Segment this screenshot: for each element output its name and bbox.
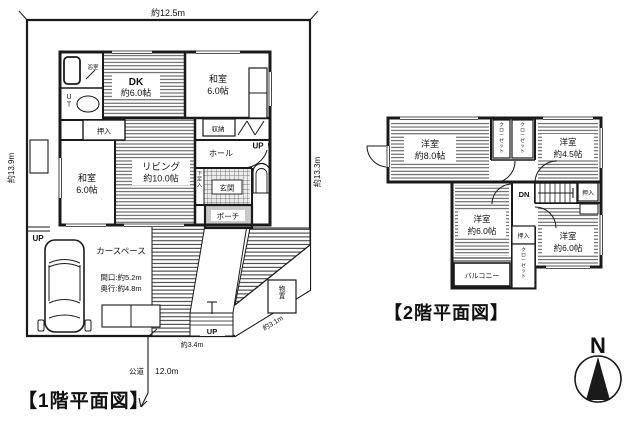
car-space-label: カースペース xyxy=(96,246,146,256)
shed-label: 物置 xyxy=(279,284,286,300)
room8-size: 約8.0帖 xyxy=(415,150,446,161)
floor2-title: 【2階平面図】 xyxy=(384,303,509,323)
oshiire-right-label: 押入 xyxy=(582,189,594,197)
entrance-label: 玄関 xyxy=(220,183,235,193)
shoe-cabinet-label: 下足入 xyxy=(197,170,202,188)
floorplan-page: 約12.5m 約13.9m 約13.3m UP 物置 xyxy=(0,0,640,421)
room8-label: 洋室 xyxy=(421,138,439,149)
bath-label: 浴室 xyxy=(87,63,99,71)
room6m-size: 約6.0帖 xyxy=(468,226,497,236)
ut-label: UT xyxy=(66,94,71,109)
hall-label: ホール xyxy=(209,149,233,158)
washitsu-top-size: 6.0帖 xyxy=(207,85,229,96)
floor1-plan: DK 約6.0帖 浴室 UT 和室 6.0帖 押入 和室 6.0帖 リビング 約… xyxy=(58,50,272,228)
depth-label: 奥行:約4.8m xyxy=(100,283,141,293)
room45-size: 約4.5帖 xyxy=(554,149,583,159)
bathtub xyxy=(64,57,80,84)
closet-b-label: クローゼット xyxy=(520,122,525,154)
room45-label: 洋室 xyxy=(559,137,577,147)
room6r-size: 約6.0帖 xyxy=(554,243,583,253)
floorplan-drawing: 約12.5m 約13.9m 約13.3m UP 物置 xyxy=(0,0,640,421)
floor2-plan: 洋室 約8.0帖 クローゼット クローゼット 洋室 約4.5帖 DN 押入 洋室… xyxy=(367,116,603,288)
washitsu-top-label: 和室 xyxy=(209,73,227,84)
dim-top: 約12.5m xyxy=(151,7,185,18)
stairs-dn xyxy=(535,183,577,203)
steps-width-label: 約3.4m xyxy=(181,340,204,349)
oshiire-mid-label: 押入 xyxy=(517,232,529,240)
washitsu-left-label: 和室 xyxy=(78,172,96,183)
up-main-label: UP xyxy=(252,142,264,151)
dim-right: 約13.3m xyxy=(312,157,322,188)
frontage-label: 間口:約5.2m xyxy=(100,272,141,282)
washbasin xyxy=(77,96,99,112)
dk-label: DK xyxy=(129,77,144,88)
oshiire-label: 押入 xyxy=(97,127,111,136)
up-steps-label: UP xyxy=(207,327,217,336)
living-size: 約10.0帖 xyxy=(143,173,179,184)
room6r-label: 洋室 xyxy=(559,231,577,241)
living-label: リビング xyxy=(142,161,181,173)
floor1-title: 【1階平面図】 xyxy=(18,389,150,412)
car xyxy=(38,240,91,332)
balcony-label: バルコニー xyxy=(465,272,500,280)
outdoor-steps: UP 物置 xyxy=(152,225,310,336)
closet-c-label: クローゼット xyxy=(521,247,526,279)
closet-a-label: クローゼット xyxy=(499,122,504,154)
washitsu-left-size: 6.0帖 xyxy=(76,184,98,195)
porch-label: ポーチ xyxy=(217,212,240,221)
road-length-label: 12.0m xyxy=(155,366,179,376)
storage-label: 収納 xyxy=(212,124,225,133)
up-site-label: UP xyxy=(32,234,44,243)
dn-label: DN xyxy=(519,190,530,199)
compass-north-label: N xyxy=(590,333,606,358)
compass: N xyxy=(575,333,621,402)
dim-left: 約13.9m xyxy=(6,153,16,184)
road-name-label: 公道 xyxy=(129,366,144,376)
room6m-label: 洋室 xyxy=(473,214,491,224)
dk-size: 約6.0帖 xyxy=(121,87,152,98)
